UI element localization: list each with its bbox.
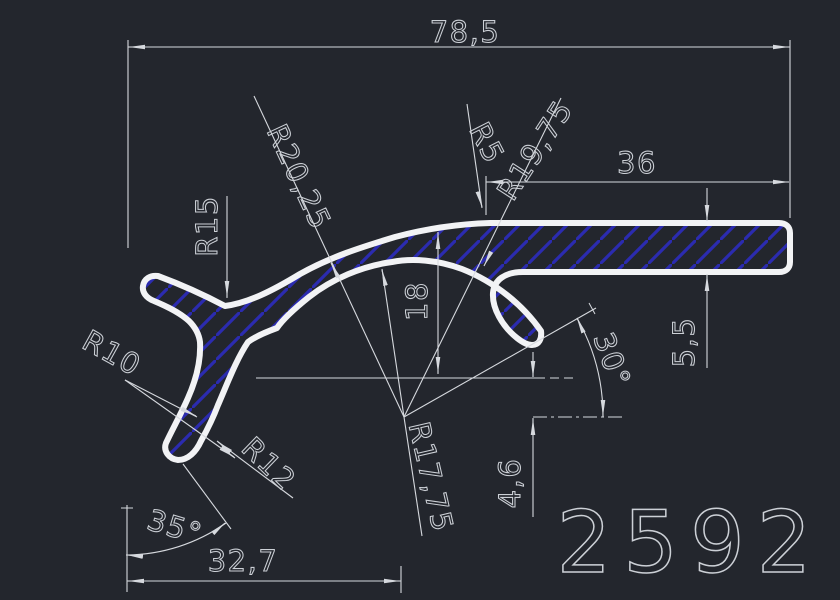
dim-base-width-label: 32,7 (208, 544, 279, 578)
dim-hump-height-label: 18 (400, 281, 434, 321)
cad-viewport: 78,5 36 R15 R20,25 R5 R19,75 18 5,5 30° … (0, 0, 840, 600)
dim-offset-label: 4,6 (493, 458, 527, 509)
dim-total-width-label: 78,5 (430, 15, 501, 49)
dim-bar-thickness-label: 5,5 (667, 317, 701, 368)
dim-bar-width-label: 36 (617, 146, 657, 180)
technical-drawing: 78,5 36 R15 R20,25 R5 R19,75 18 5,5 30° … (0, 0, 840, 600)
radius-label-r15: R15 (190, 195, 224, 257)
part-number: 2592 (557, 493, 824, 593)
